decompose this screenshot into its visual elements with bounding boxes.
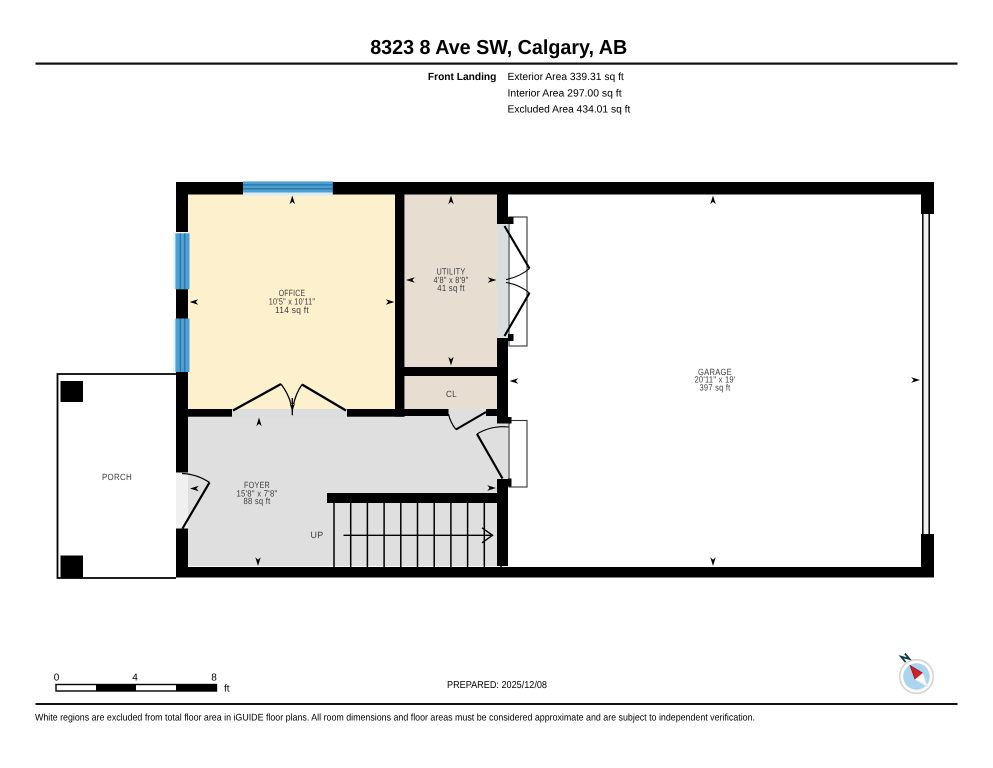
svg-text:0: 0 xyxy=(54,673,60,684)
svg-text:Exterior Area 339.31 sq ft: Exterior Area 339.31 sq ft xyxy=(508,72,624,83)
svg-text:4: 4 xyxy=(132,673,138,684)
svg-text:CL: CL xyxy=(446,389,457,399)
svg-text:8323 8 Ave SW, Calgary, AB: 8323 8 Ave SW, Calgary, AB xyxy=(370,37,627,59)
svg-text:PREPARED: 2025/12/08: PREPARED: 2025/12/08 xyxy=(447,680,547,691)
svg-text:114 sq ft: 114 sq ft xyxy=(275,305,309,315)
svg-text:PORCH: PORCH xyxy=(102,472,132,482)
svg-text:White regions are excluded fro: White regions are excluded from total fl… xyxy=(35,712,755,723)
svg-text:Excluded Area 434.01 sq ft: Excluded Area 434.01 sq ft xyxy=(508,105,631,116)
svg-text:ft: ft xyxy=(224,684,230,695)
svg-text:41 sq ft: 41 sq ft xyxy=(437,283,465,293)
svg-text:397 sq ft: 397 sq ft xyxy=(700,382,731,392)
svg-text:88 sq ft: 88 sq ft xyxy=(244,496,271,506)
svg-text:8: 8 xyxy=(211,673,217,684)
svg-text:UP: UP xyxy=(311,530,324,540)
svg-text:Front Landing: Front Landing xyxy=(428,72,497,83)
svg-text:Interior Area 297.00 sq ft: Interior Area 297.00 sq ft xyxy=(508,89,622,100)
